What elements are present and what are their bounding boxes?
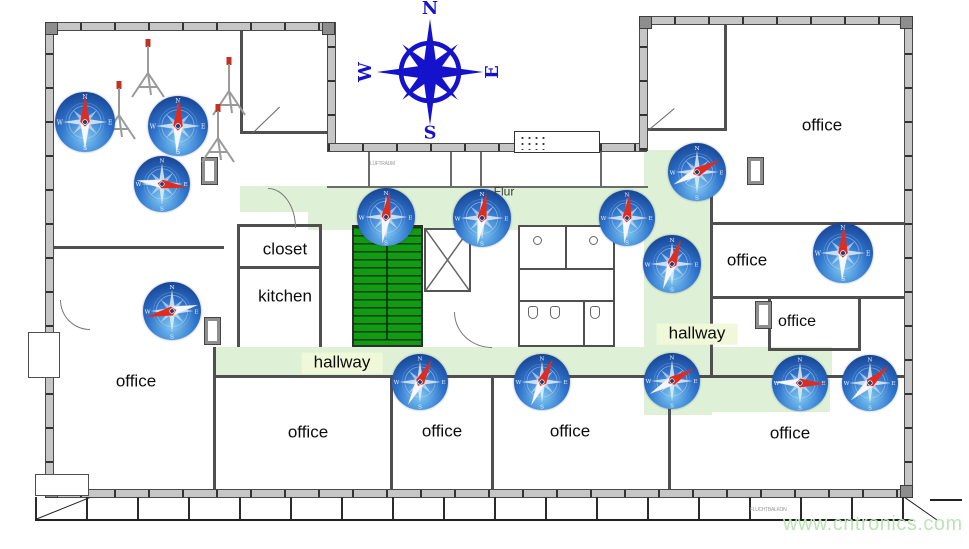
svg-text:N: N	[798, 358, 803, 364]
svg-text:S: S	[868, 405, 872, 411]
room-label-office: office	[727, 252, 767, 271]
compass-icon: NESW	[668, 143, 726, 201]
svg-text:W: W	[145, 309, 151, 315]
door-arc	[454, 312, 492, 348]
outer-wall	[904, 16, 913, 498]
wall-segment	[639, 128, 727, 131]
wall-segment	[712, 296, 904, 299]
svg-text:E: E	[648, 216, 652, 222]
wall-segment	[724, 25, 727, 131]
svg-text:N: N	[169, 285, 174, 291]
svg-text:N: N	[670, 356, 675, 362]
svg-text:N: N	[694, 146, 699, 152]
wall-segment	[712, 222, 904, 225]
svg-text:S: S	[695, 195, 699, 201]
svg-text:E: E	[194, 309, 198, 315]
wall-segment	[858, 298, 861, 350]
outer-wall	[639, 16, 648, 151]
door-swing	[252, 107, 280, 134]
exterior-box	[35, 474, 89, 496]
room-label-flur: Flur	[494, 185, 515, 198]
staircase-divider	[386, 236, 388, 340]
compass-icon: NESW	[134, 156, 190, 212]
svg-text:W: W	[150, 123, 157, 130]
svg-text:W: W	[646, 379, 652, 385]
svg-text:W: W	[359, 215, 365, 221]
svg-text:N: N	[383, 191, 388, 197]
svg-text:E: E	[563, 380, 567, 386]
wall-segment	[583, 300, 585, 347]
rose-letter-w: W	[355, 61, 376, 83]
compass-icon: NESW	[392, 354, 448, 410]
outer-wall	[639, 16, 913, 25]
terrace-line	[930, 499, 962, 501]
wall-corner	[322, 22, 335, 35]
room-label-office: office	[550, 423, 590, 442]
vent-label: LÜFTRAUM	[370, 161, 395, 167]
room-label-hallway: hallway	[302, 353, 383, 374]
watermark: www.cntronics.com	[783, 513, 963, 536]
terrace-label: FLUCHTBALKON	[750, 507, 786, 513]
vent-grille	[514, 131, 600, 153]
room-label-kitchen: kitchen	[258, 288, 312, 307]
wall-segment	[319, 224, 322, 347]
svg-text:S: S	[670, 287, 674, 293]
wall-fixture-icon	[205, 318, 220, 344]
svg-text:E: E	[408, 215, 412, 221]
svg-text:S: S	[540, 404, 544, 410]
room-label-office: office	[422, 423, 462, 442]
wall-fixture-icon	[756, 302, 771, 328]
rose-letter-s: S	[424, 122, 437, 143]
svg-text:W: W	[844, 381, 850, 387]
compass-icon: NESW	[643, 235, 701, 293]
wall-segment	[213, 347, 216, 489]
svg-text:S: S	[625, 240, 629, 246]
room-label-office: office	[778, 313, 816, 331]
compass-icon: NESW	[55, 92, 115, 152]
wall-corner	[900, 16, 913, 29]
svg-text:N: N	[479, 192, 484, 198]
compass-icon: NESW	[842, 355, 898, 411]
svg-text:N: N	[418, 357, 423, 363]
compass-icon: NESW	[772, 355, 828, 411]
wall-segment	[450, 150, 452, 187]
compass-icon: NESW	[514, 354, 570, 410]
room-label-closet: closet	[263, 241, 307, 260]
svg-text:W: W	[394, 380, 400, 386]
svg-text:E: E	[866, 250, 870, 257]
sink-icon	[589, 236, 598, 245]
svg-text:W: W	[455, 216, 461, 222]
wall-segment	[480, 150, 482, 187]
room-label-office: office	[288, 424, 328, 443]
vent-grille-dots	[519, 135, 549, 150]
svg-text:S: S	[160, 206, 164, 212]
svg-text:S: S	[418, 404, 422, 410]
compass-icon: NESW	[357, 188, 415, 246]
balcony-box	[28, 332, 60, 378]
wall-segment	[368, 150, 370, 187]
svg-text:S: S	[170, 334, 174, 340]
svg-text:E: E	[441, 380, 445, 386]
wall-segment	[237, 224, 240, 347]
rose-letter-e: E	[482, 65, 503, 79]
svg-text:E: E	[108, 119, 112, 126]
svg-text:E: E	[719, 170, 723, 176]
svg-text:W: W	[57, 119, 64, 126]
outer-wall	[327, 22, 336, 151]
room-label-office: office	[802, 117, 842, 136]
wall-fixture-icon	[748, 158, 763, 184]
svg-text:N: N	[160, 159, 165, 165]
wall-corner	[639, 16, 652, 29]
toilet-icon	[590, 306, 600, 319]
svg-text:E: E	[504, 216, 508, 222]
compass-icon: NESW	[148, 96, 208, 156]
outer-wall	[45, 22, 54, 498]
sink-icon	[533, 236, 542, 245]
compass-rose: N E S W	[360, 2, 500, 142]
svg-text:S: S	[670, 403, 674, 409]
svg-text:W: W	[601, 216, 607, 222]
svg-text:S: S	[480, 241, 484, 247]
compass-icon: NESW	[813, 223, 873, 283]
wall-segment	[54, 246, 224, 249]
svg-text:E: E	[693, 379, 697, 385]
outer-wall	[45, 22, 335, 31]
svg-text:N: N	[540, 357, 545, 363]
wall-corner	[45, 22, 58, 35]
compass-icon: NESW	[143, 282, 201, 340]
svg-text:N: N	[669, 238, 674, 244]
toilet-icon	[528, 306, 538, 319]
svg-text:E: E	[891, 381, 895, 387]
floorplan-canvas: LÜFTRAUM FLUCHTBALKON N E S W NESWNESW	[0, 0, 969, 549]
svg-text:E: E	[201, 123, 205, 130]
room-label-hallway: hallway	[657, 324, 738, 345]
wall-segment	[565, 225, 567, 270]
wall-segment	[768, 348, 861, 351]
room-label-office: office	[116, 373, 156, 392]
wall-segment	[491, 378, 494, 489]
svg-text:W: W	[815, 250, 822, 257]
toilet-icon	[550, 306, 560, 319]
svg-text:W: W	[136, 182, 142, 188]
svg-text:S: S	[798, 405, 802, 411]
svg-text:W: W	[670, 170, 676, 176]
compass-icon: NESW	[644, 353, 700, 409]
svg-text:N: N	[868, 358, 873, 364]
wall-segment	[600, 150, 602, 187]
door-arc	[60, 300, 90, 330]
rose-letter-n: N	[422, 0, 438, 19]
room-label-office: office	[770, 425, 810, 444]
svg-text:S: S	[384, 240, 388, 246]
svg-text:E: E	[694, 262, 698, 268]
svg-text:W: W	[645, 262, 651, 268]
wall-segment	[237, 266, 322, 269]
svg-text:W: W	[516, 380, 522, 386]
wall-segment	[518, 300, 615, 302]
